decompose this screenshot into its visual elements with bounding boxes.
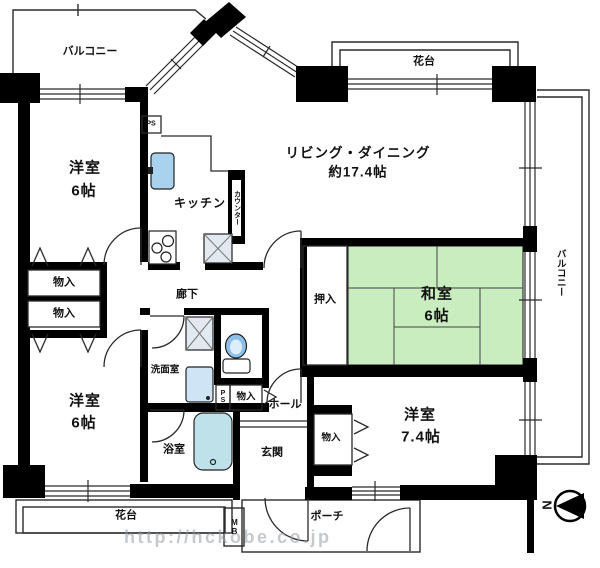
washbasin-icon bbox=[186, 317, 213, 350]
floorplan-drawing bbox=[0, 0, 600, 568]
oshiire-box bbox=[303, 246, 347, 365]
compass-icon bbox=[555, 491, 585, 521]
closet-top-1-box bbox=[28, 270, 100, 296]
kitchen-hatch-icon bbox=[204, 234, 232, 263]
balcony-top-rail bbox=[13, 10, 206, 76]
watermark-url: http://hckobe.co.jp bbox=[124, 527, 332, 548]
toilet-icon bbox=[223, 334, 250, 373]
sink-icon bbox=[151, 153, 174, 189]
balcony-right-rail bbox=[537, 90, 589, 464]
closet-bottom-right-box bbox=[314, 414, 352, 465]
bathtub-icon bbox=[194, 413, 232, 470]
tatami-mats bbox=[348, 246, 523, 365]
stove-icon bbox=[149, 231, 176, 264]
washing-machine-icon bbox=[186, 367, 213, 402]
floorplan: バルコニー 花台 リビング・ダイニング 約17.4帖 洋室 6帖 キッチン カウ… bbox=[0, 0, 600, 568]
closet-top-2-box bbox=[28, 301, 100, 327]
flower-stand-top-outline bbox=[332, 42, 518, 76]
counter-slot bbox=[232, 180, 241, 236]
